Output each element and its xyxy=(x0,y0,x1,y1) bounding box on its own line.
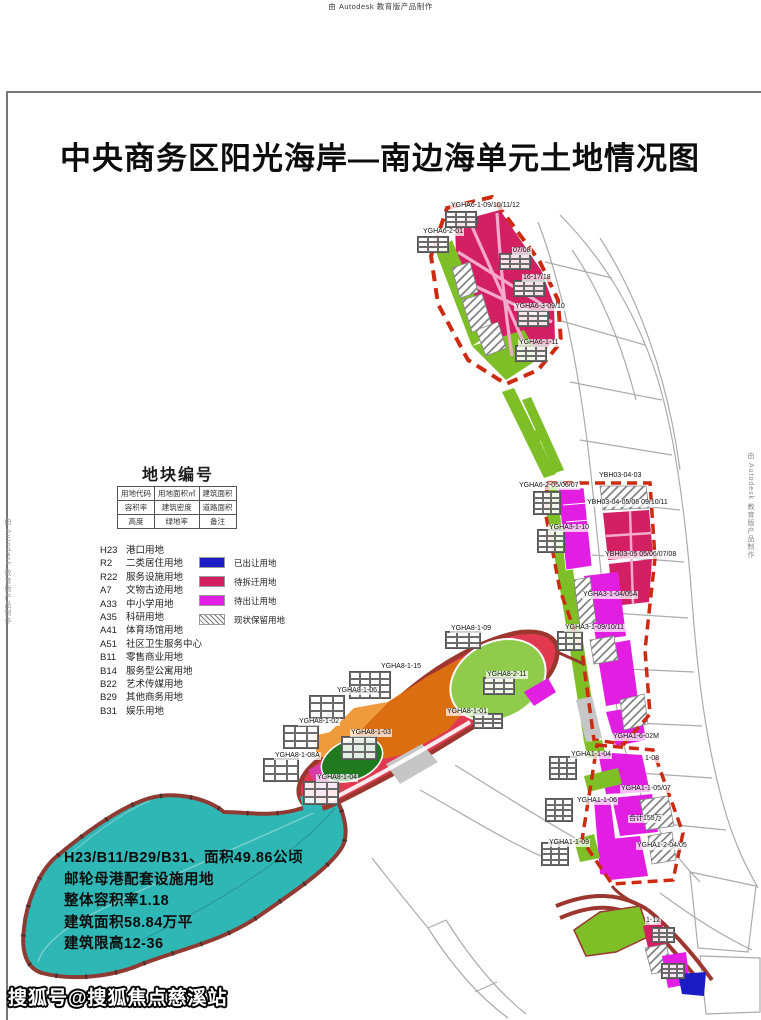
landuse-item: A33中小学用地 xyxy=(100,598,202,611)
legend-table-cell: 高度 xyxy=(118,515,155,529)
status-swatch xyxy=(199,557,225,568)
annotation-line: H23/B11/B29/B31、面积49.86公顷 xyxy=(64,848,303,870)
landuse-item: B11零售商业用地 xyxy=(100,651,202,664)
landuse-item: B14服务型公寓用地 xyxy=(100,665,202,678)
legend-table-cell: 备注 xyxy=(199,515,236,529)
status-item: 已出让用地 xyxy=(199,553,285,572)
status-item: 现状保留用地 xyxy=(199,610,285,629)
status-item: 待拆迁用地 xyxy=(199,572,285,591)
legend-table-cell: 绿地率 xyxy=(155,515,200,529)
landuse-list: H23港口用地R2二类居住用地R22服务设施用地A7文物古迹用地A33中小学用地… xyxy=(100,544,202,718)
legend-table-cell: 容积率 xyxy=(118,501,155,515)
legend-table-cell: 道路面积 xyxy=(199,501,236,515)
landuse-item: A51社区卫生服务中心 xyxy=(100,638,202,651)
northeast-district xyxy=(431,197,561,384)
landuse-item: R2二类居住用地 xyxy=(100,557,202,570)
landuse-item: R22服务设施用地 xyxy=(100,571,202,584)
planning-map-sheet: YGHA6-1-09/10/11/12YGHA6-2-0107/0816-17/… xyxy=(0,0,761,1020)
annotation-line: 建筑限高12-36 xyxy=(64,934,303,956)
landuse-item: A35科研用地 xyxy=(100,611,202,624)
status-swatch xyxy=(199,614,225,625)
status-swatch xyxy=(199,576,225,587)
legend-table-cell: 用地面积㎡ xyxy=(155,487,200,501)
bottomright-district xyxy=(574,740,683,884)
autodesk-watermark-right: 由 Autodesk 教育版产品制作 xyxy=(745,452,755,559)
annotation-block: H23/B11/B29/B31、面积49.86公顷邮轮母港配套设施用地整体容积率… xyxy=(64,848,303,956)
legend-attr-table: 用地代码用地面积㎡建筑面积容积率建筑密度道路面积高度绿地率备注 xyxy=(117,486,237,529)
landuse-item: A41体育场馆用地 xyxy=(100,624,202,637)
status-legend: 已出让用地待拆迁用地待出让用地现状保留用地 xyxy=(199,553,285,629)
legend-table-cell: 建筑密度 xyxy=(155,501,200,515)
legend-table-cell: 建筑面积 xyxy=(199,487,236,501)
legend-attr-table-body: 用地代码用地面积㎡建筑面积容积率建筑密度道路面积高度绿地率备注 xyxy=(118,487,237,529)
annotation-line: 邮轮母港配套设施用地 xyxy=(64,870,303,892)
autodesk-watermark-top: 由 Autodesk 教育版产品制作 xyxy=(0,1,761,12)
landuse-item: B29其他商务用地 xyxy=(100,691,202,704)
landuse-item: B31娱乐用地 xyxy=(100,705,202,718)
drawing-frame-top xyxy=(6,91,761,93)
south-tail xyxy=(556,886,712,996)
annotation-line: 建筑面积58.84万平 xyxy=(64,913,303,935)
status-item: 待出让用地 xyxy=(199,591,285,610)
legend-table-cell: 用地代码 xyxy=(118,487,155,501)
landuse-item: H23港口用地 xyxy=(100,544,202,557)
transferred-parcel xyxy=(678,972,706,996)
autodesk-watermark-left: 由 Autodesk 教育版产品制作 xyxy=(2,518,12,625)
sohu-watermark: 搜狐号@搜狐焦点慈溪站 xyxy=(8,983,228,1010)
legend-heading: 地块编号 xyxy=(142,461,214,485)
page-title: 中央商务区阳光海岸—南边海单元土地情况图 xyxy=(20,133,740,178)
annotation-line: 整体容积率1.18 xyxy=(64,891,303,913)
status-swatch xyxy=(199,595,225,606)
green-corridor-north xyxy=(502,388,564,478)
central-island xyxy=(299,623,584,814)
landuse-item: B22艺术传媒用地 xyxy=(100,678,202,691)
landuse-item: A7文物古迹用地 xyxy=(100,584,202,597)
